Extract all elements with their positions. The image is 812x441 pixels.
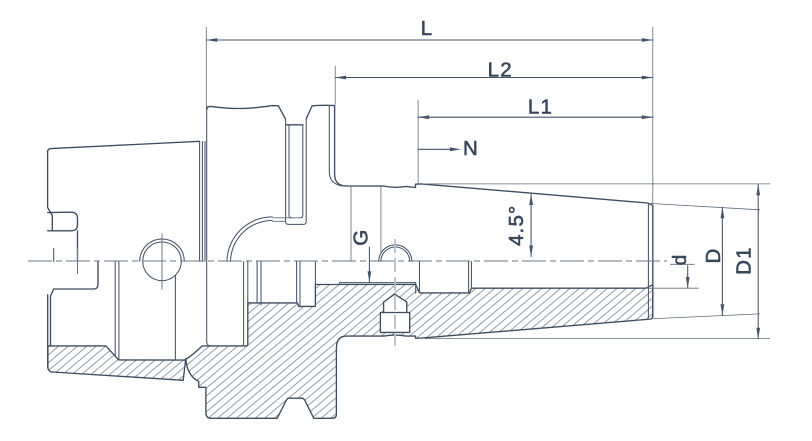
svg-text:L1: L1 <box>528 96 553 119</box>
svg-text:L: L <box>421 17 434 40</box>
svg-text:D: D <box>702 247 725 263</box>
svg-text:G: G <box>349 229 372 246</box>
svg-text:d: d <box>670 254 691 266</box>
svg-text:N: N <box>463 137 479 160</box>
svg-text:D1: D1 <box>733 246 756 275</box>
svg-text:4.5°: 4.5° <box>505 205 528 247</box>
svg-text:L2: L2 <box>488 58 513 81</box>
